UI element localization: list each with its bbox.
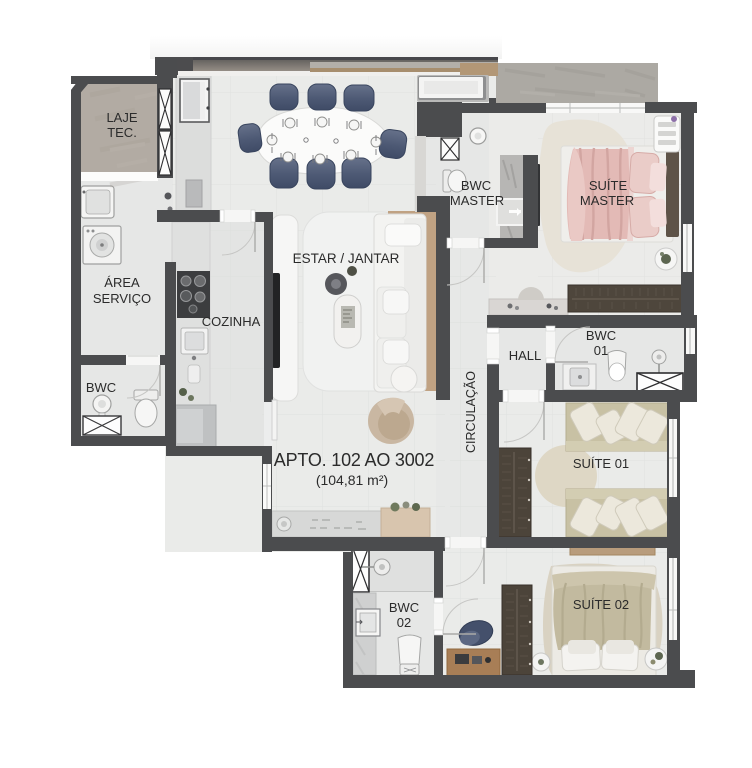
svg-text:MASTER: MASTER [450,193,504,208]
svg-text:BWC: BWC [389,600,419,615]
svg-text:LAJE: LAJE [106,110,137,125]
svg-text:SUÍTE: SUÍTE [589,178,628,193]
svg-text:(104,81 m²): (104,81 m²) [316,472,388,488]
svg-text:BWC: BWC [586,328,616,343]
svg-text:SUÍTE 02: SUÍTE 02 [573,597,629,612]
svg-text:ÁREA: ÁREA [104,275,140,290]
svg-text:CIRCULAÇÃO: CIRCULAÇÃO [464,371,478,453]
svg-text:TEC.: TEC. [107,125,137,140]
svg-text:APTO. 102 AO 3002: APTO. 102 AO 3002 [274,450,435,470]
svg-text:02: 02 [397,615,411,630]
svg-text:HALL: HALL [509,348,542,363]
svg-text:SUÍTE 01: SUÍTE 01 [573,456,629,471]
svg-text:SERVIÇO: SERVIÇO [93,291,151,306]
svg-text:BWC: BWC [461,178,491,193]
svg-text:01: 01 [594,343,608,358]
svg-text:BWC: BWC [86,380,116,395]
svg-text:ESTAR / JANTAR: ESTAR / JANTAR [293,251,400,266]
svg-text:COZINHA: COZINHA [202,314,261,329]
svg-text:MASTER: MASTER [580,193,634,208]
